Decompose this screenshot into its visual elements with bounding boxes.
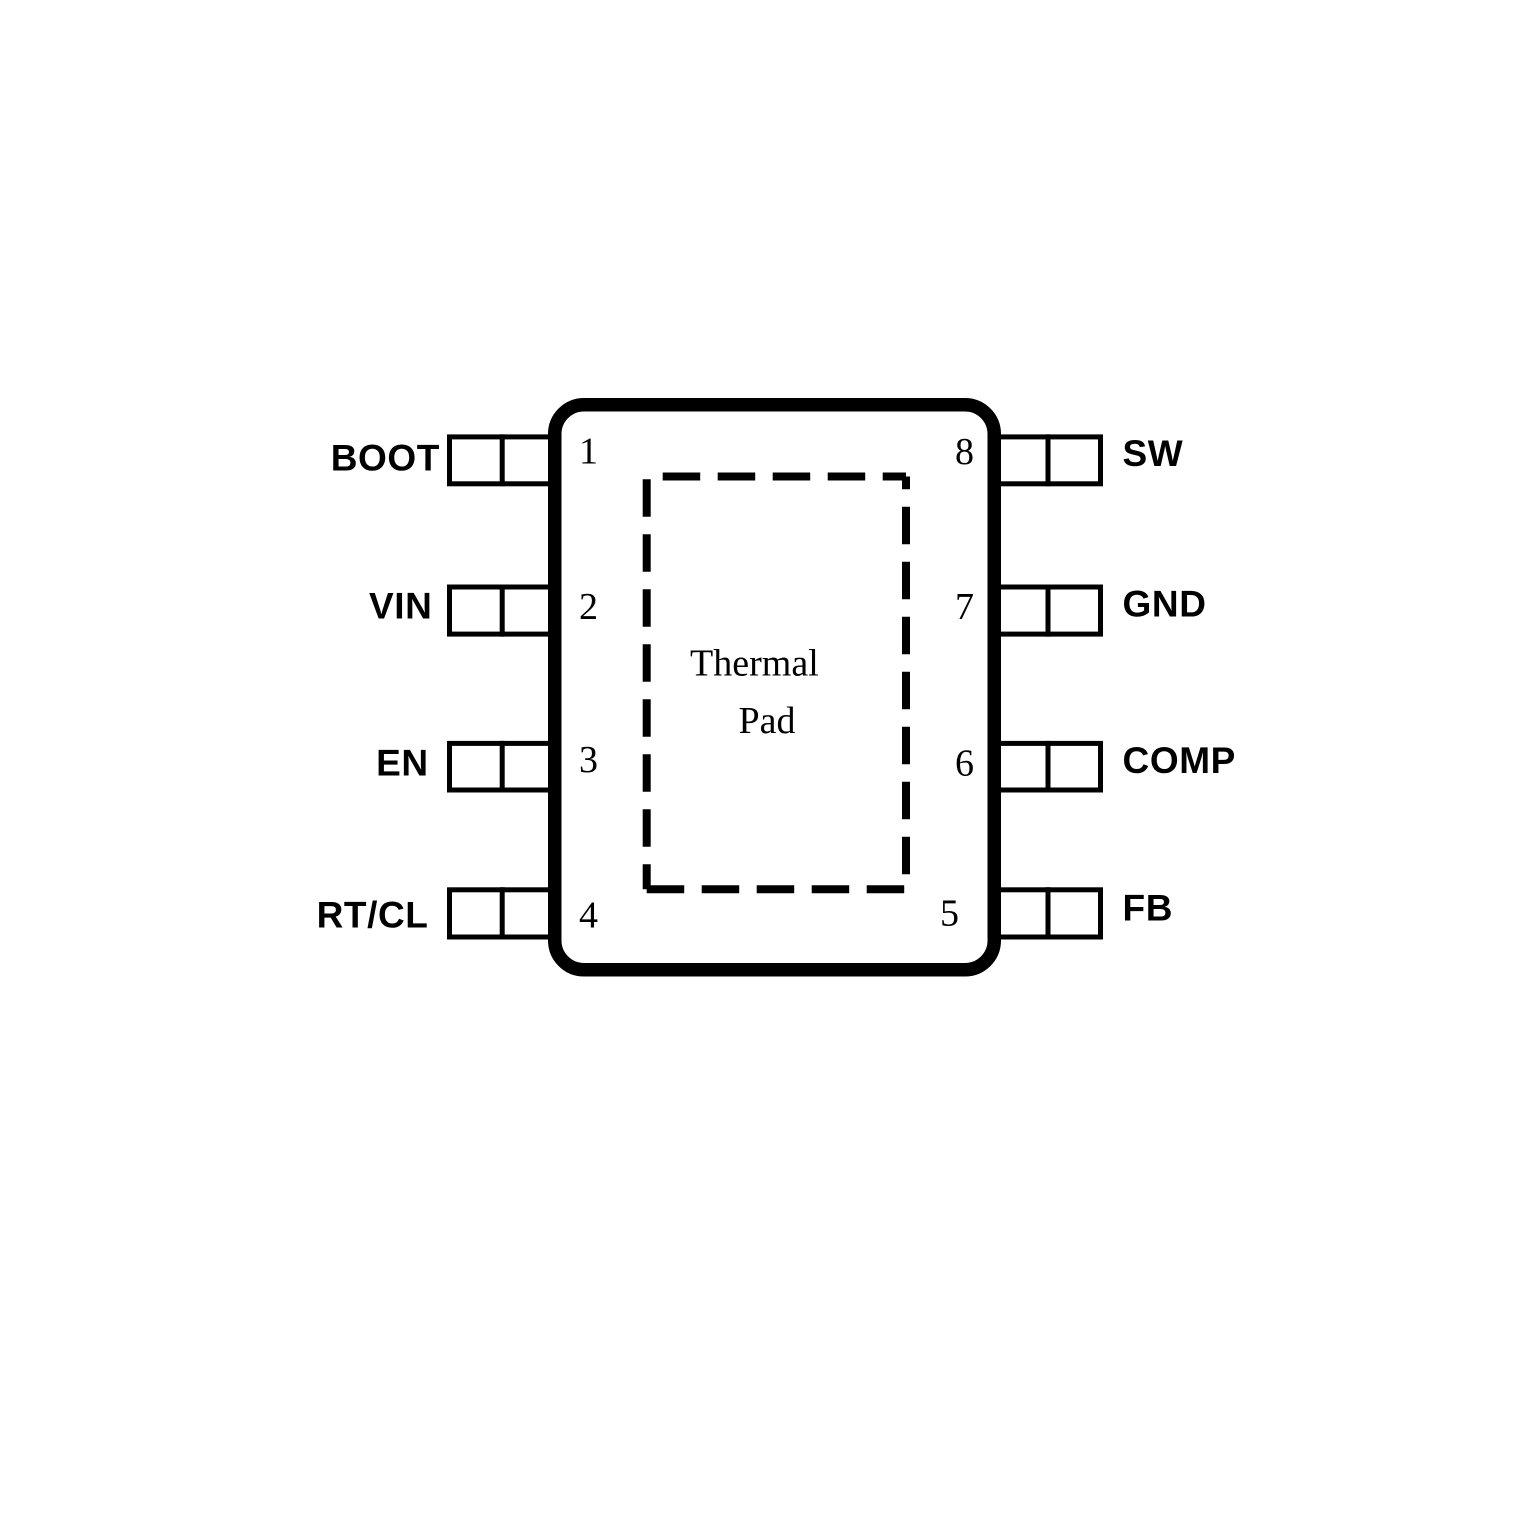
svg-text:GND: GND (1123, 583, 1207, 624)
svg-text:1: 1 (579, 431, 598, 473)
svg-text:COMP: COMP (1123, 740, 1236, 781)
svg-text:SW: SW (1123, 433, 1184, 474)
svg-text:8: 8 (955, 431, 974, 473)
svg-text:FB: FB (1123, 888, 1174, 929)
svg-text:5: 5 (940, 892, 959, 934)
svg-text:7: 7 (955, 586, 974, 628)
svg-text:3: 3 (579, 739, 598, 781)
svg-text:VIN: VIN (369, 585, 432, 626)
svg-text:BOOT: BOOT (331, 437, 440, 478)
svg-text:RT/CL: RT/CL (317, 894, 429, 935)
svg-text:Thermal: Thermal (690, 643, 819, 685)
svg-text:6: 6 (955, 742, 974, 784)
svg-text:2: 2 (579, 586, 598, 628)
svg-text:EN: EN (376, 743, 429, 784)
svg-text:Pad: Pad (739, 700, 796, 742)
svg-text:4: 4 (579, 895, 598, 937)
